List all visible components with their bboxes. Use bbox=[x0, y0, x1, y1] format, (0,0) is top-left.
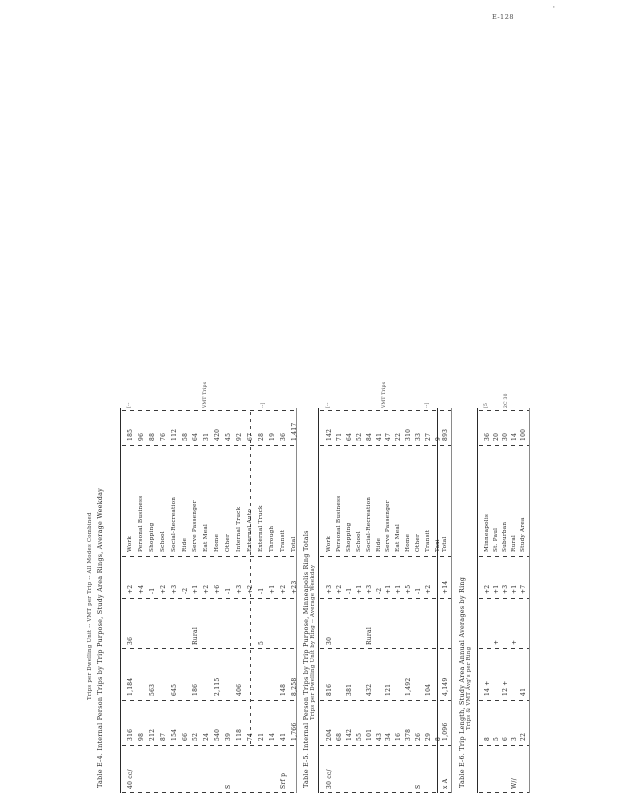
column-separator-rule bbox=[122, 410, 296, 411]
cell-value-e: 39 bbox=[226, 733, 232, 741]
cell-value-b: +3 bbox=[503, 585, 509, 594]
cell-value-a: 41 bbox=[377, 433, 383, 441]
cell-value-e: 14 bbox=[270, 733, 276, 741]
cell-value-a: 64 bbox=[193, 433, 199, 441]
column-separator-rule bbox=[122, 556, 296, 557]
cell-value-b: +2 bbox=[426, 585, 432, 594]
cell-value-a: 20 bbox=[494, 433, 500, 441]
cell-value-d: 8,258 bbox=[292, 678, 298, 696]
column-separator-rule bbox=[122, 792, 296, 793]
row-label: Serve Passenger bbox=[386, 500, 392, 552]
row-label: External Auto bbox=[248, 509, 254, 552]
cell-value-d: 12 + bbox=[503, 680, 509, 696]
column-separator-rule bbox=[479, 598, 529, 599]
cell-value-b: -2 bbox=[183, 588, 189, 594]
table-left-rule bbox=[477, 408, 478, 793]
cell-value-b: +2 bbox=[128, 585, 134, 594]
cell-value-a: 88 bbox=[150, 433, 156, 441]
column-separator-rule bbox=[479, 648, 529, 649]
table-right-rule bbox=[451, 408, 452, 793]
cell-value-b: -1 bbox=[416, 588, 422, 594]
cell-value-d: 563 bbox=[150, 684, 156, 696]
cell-value-a: 27 bbox=[426, 433, 432, 441]
cell-value-e: 52 bbox=[193, 733, 199, 741]
cell-value-b: +1 bbox=[386, 585, 392, 594]
column-header-mark: --] bbox=[426, 402, 431, 408]
column-header-mark: [-- bbox=[128, 402, 133, 408]
cell-value-e: 43 bbox=[377, 733, 383, 741]
cell-value-a: 310 bbox=[406, 429, 412, 441]
cell-value-b: +3 bbox=[172, 585, 178, 594]
column-header-mark: --] bbox=[262, 402, 267, 408]
row-label: School bbox=[357, 531, 363, 552]
cell-value-e: 24 bbox=[204, 733, 210, 741]
cell-value-d: 816 bbox=[327, 684, 333, 696]
table-subtitle: Trips & VMT Avg's per Ring bbox=[467, 647, 472, 730]
cell-value-f: S bbox=[226, 785, 232, 789]
cell-value-e: 540 bbox=[215, 729, 221, 741]
cell-value-e: 101 bbox=[367, 729, 373, 741]
table-subtitle: Trips per Dwelling Unit -- VMT per Trip … bbox=[88, 512, 93, 700]
cell-value-b: +3 bbox=[237, 585, 243, 594]
cell-value-b: -1 bbox=[150, 588, 156, 594]
cell-value-e: 142 bbox=[347, 729, 353, 741]
cell-value-e: 29 bbox=[426, 733, 432, 741]
column-separator-rule bbox=[479, 410, 529, 411]
table-total-rule bbox=[437, 408, 438, 793]
cell-value-d: 14 + bbox=[485, 680, 491, 696]
row-label: Eat Meal bbox=[396, 524, 402, 552]
cell-value-b: -1 bbox=[259, 588, 265, 594]
cell-value-c: 5 bbox=[259, 641, 265, 645]
cell-value-b: +2 bbox=[281, 585, 287, 594]
cell-value-d: 432 bbox=[367, 684, 373, 696]
row-label: Shopping bbox=[347, 523, 353, 552]
cell-value-a: 30 bbox=[503, 433, 509, 441]
cell-value-b: +14 bbox=[443, 581, 449, 594]
cell-value-e: 22 bbox=[521, 733, 527, 741]
row-label: Other bbox=[226, 534, 232, 552]
cell-value-a: 1,417 bbox=[292, 423, 298, 441]
cell-value-b: +1 bbox=[512, 585, 518, 594]
cell-value-a: 28 bbox=[259, 433, 265, 441]
cell-value-a: 22 bbox=[396, 433, 402, 441]
cell-value-d: 4,149 bbox=[443, 678, 449, 696]
cell-value-a: 84 bbox=[367, 433, 373, 441]
row-label: Work bbox=[327, 536, 333, 552]
cell-value-a: 45 bbox=[226, 433, 232, 441]
cell-value-e: 378 bbox=[406, 729, 412, 741]
row-label: Home bbox=[215, 534, 221, 552]
cell-value-b: -1 bbox=[226, 588, 232, 594]
cell-value-e: 87 bbox=[161, 733, 167, 741]
column-separator-rule bbox=[122, 700, 296, 701]
cell-value-b: +23 bbox=[292, 581, 298, 594]
cell-value-f: Srf p bbox=[281, 773, 287, 789]
cell-value-c: 30 bbox=[327, 637, 333, 645]
column-header-mark: 2C 30 bbox=[505, 393, 510, 408]
cell-value-f: x A bbox=[443, 779, 449, 789]
row-label: Home bbox=[406, 534, 412, 552]
row-label: Work bbox=[128, 536, 134, 552]
cell-value-d: 645 bbox=[172, 684, 178, 696]
cell-value-f: S bbox=[416, 785, 422, 789]
cell-value-c: + bbox=[512, 640, 518, 645]
cell-value-d: 1,184 bbox=[128, 678, 134, 696]
row-label: Minneapolis bbox=[485, 514, 491, 552]
cell-value-a: 14 bbox=[512, 433, 518, 441]
cell-value-a: 58 bbox=[183, 433, 189, 441]
page-number-label: E-128 bbox=[492, 13, 514, 21]
column-header-mark: [5 bbox=[485, 403, 490, 408]
cell-value-e: 5 bbox=[494, 737, 500, 741]
cell-value-b: +3 bbox=[367, 585, 373, 594]
table-right-rule bbox=[529, 408, 530, 793]
column-separator-rule bbox=[320, 745, 451, 746]
row-label: Personal Business bbox=[337, 496, 343, 552]
cell-value-a: 36 bbox=[485, 433, 491, 441]
cell-value-d: 1,492 bbox=[406, 678, 412, 696]
cell-value-e: 316 bbox=[128, 729, 134, 741]
cell-value-a: 52 bbox=[357, 433, 363, 441]
table-title: Table E-4. Internal Person Trips by Trip… bbox=[97, 488, 103, 788]
column-separator-rule bbox=[320, 556, 451, 557]
cell-value-a: 76 bbox=[161, 433, 167, 441]
row-label: Total bbox=[292, 536, 298, 552]
cell-value-f: W// bbox=[512, 778, 518, 789]
row-group-separator bbox=[250, 412, 251, 745]
cell-value-b: +6 bbox=[215, 585, 221, 594]
cell-value-e: 8 bbox=[485, 737, 491, 741]
cell-value-e: 66 bbox=[183, 733, 189, 741]
row-label: Eat Meal bbox=[204, 524, 210, 552]
cell-value-c: Rural bbox=[367, 627, 373, 645]
cell-value-e: 6 bbox=[503, 737, 509, 741]
cell-value-c: + bbox=[494, 640, 500, 645]
column-separator-rule bbox=[320, 598, 451, 599]
cell-value-e: 8 bbox=[436, 737, 442, 741]
cell-value-e: 3 bbox=[512, 737, 518, 741]
cell-value-e: 26 bbox=[416, 733, 422, 741]
table-left-rule bbox=[318, 408, 319, 793]
scanned-document-page: E-128 ' Table E-4. Internal Person Trips… bbox=[0, 0, 618, 800]
column-separator-rule bbox=[479, 792, 529, 793]
cell-value-a: 420 bbox=[215, 429, 221, 441]
row-label: Ride bbox=[183, 538, 189, 552]
cell-value-a: 96 bbox=[139, 433, 145, 441]
cell-value-b: +2 bbox=[161, 585, 167, 594]
cell-value-e: 1,766 bbox=[292, 723, 298, 741]
cell-value-b: +1 bbox=[494, 585, 500, 594]
cell-value-d: 406 bbox=[237, 684, 243, 696]
row-label: Through bbox=[270, 526, 276, 552]
row-label: Transit bbox=[281, 530, 287, 552]
column-separator-rule bbox=[479, 700, 529, 701]
row-label: Ride bbox=[377, 538, 383, 552]
row-label: Rural bbox=[512, 535, 518, 552]
cell-value-a: 47 bbox=[386, 433, 392, 441]
cell-value-b: +7 bbox=[521, 585, 527, 594]
column-separator-rule bbox=[122, 445, 296, 446]
cell-value-b: +1 bbox=[396, 585, 402, 594]
cell-value-a: 33 bbox=[416, 433, 422, 441]
cell-value-e: 204 bbox=[327, 729, 333, 741]
row-label: Personal Business bbox=[139, 496, 145, 552]
cell-value-b: +2 bbox=[204, 585, 210, 594]
cell-value-d: 121 bbox=[386, 684, 392, 696]
column-separator-rule bbox=[479, 745, 529, 746]
cell-value-b: +1 bbox=[270, 585, 276, 594]
cell-value-d: 186 bbox=[193, 684, 199, 696]
column-separator-rule bbox=[122, 745, 296, 746]
column-separator-rule bbox=[320, 410, 451, 411]
cell-value-e: 21 bbox=[259, 733, 265, 741]
cell-value-e: 16 bbox=[396, 733, 402, 741]
column-separator-rule bbox=[479, 445, 529, 446]
table-left-rule bbox=[120, 408, 121, 793]
column-header-mark: [-- bbox=[327, 402, 332, 408]
cell-value-b: +4 bbox=[139, 585, 145, 594]
cell-value-b: +5 bbox=[406, 585, 412, 594]
column-header-mark: VMT Trips bbox=[383, 382, 388, 408]
cell-value-e: 118 bbox=[237, 729, 243, 741]
row-label: Shopping bbox=[150, 523, 156, 552]
cell-value-b: +2 bbox=[248, 585, 254, 594]
cell-value-a: 92 bbox=[237, 433, 243, 441]
cell-value-e: 55 bbox=[357, 733, 363, 741]
cell-value-b: -1 bbox=[347, 588, 353, 594]
cell-value-a: 31 bbox=[204, 433, 210, 441]
row-label: External Truck bbox=[259, 505, 265, 552]
cell-value-e: 74 bbox=[248, 733, 254, 741]
column-header-mark: VMT Trips bbox=[204, 382, 209, 408]
cell-value-c: Rural bbox=[193, 627, 199, 645]
cell-value-a: 19 bbox=[270, 433, 276, 441]
column-separator-rule bbox=[122, 648, 296, 649]
cell-value-d: 104 bbox=[426, 684, 432, 696]
cell-value-a: 185 bbox=[128, 429, 134, 441]
cell-value-f: 30 cc/ bbox=[327, 769, 333, 789]
cell-value-f: 40 cc/ bbox=[128, 769, 134, 789]
column-separator-rule bbox=[479, 556, 529, 557]
cell-value-a: 893 bbox=[443, 429, 449, 441]
cell-value-e: 154 bbox=[172, 729, 178, 741]
cell-value-d: 41 bbox=[521, 688, 527, 696]
cell-value-e: 41 bbox=[281, 733, 287, 741]
cell-value-b: +2 bbox=[337, 585, 343, 594]
cell-value-a: 71 bbox=[337, 433, 343, 441]
cell-value-e: 1,096 bbox=[443, 723, 449, 741]
cell-value-b: +2 bbox=[485, 585, 491, 594]
cell-value-b: +3 bbox=[327, 585, 333, 594]
cell-value-d: 148 bbox=[281, 684, 287, 696]
column-separator-rule bbox=[122, 598, 296, 599]
row-label: Internal Truck bbox=[237, 507, 243, 552]
stray-mark: ' bbox=[553, 5, 555, 13]
table-title: Table E-5. Internal Person Trips by Trip… bbox=[303, 530, 309, 788]
column-separator-rule bbox=[320, 445, 451, 446]
table-title: Table E-6. Trip Length, Study Area Annua… bbox=[459, 577, 465, 788]
row-label: Total bbox=[443, 536, 449, 552]
row-label: Other bbox=[416, 534, 422, 552]
column-separator-rule bbox=[320, 700, 451, 701]
cell-value-a: 64 bbox=[347, 433, 353, 441]
row-label: Social-Recreation bbox=[172, 497, 178, 552]
row-label: Suburban bbox=[503, 522, 509, 552]
cell-value-b: +1 bbox=[357, 585, 363, 594]
column-separator-rule bbox=[320, 792, 451, 793]
cell-value-c: 36 bbox=[128, 637, 134, 645]
row-label: Transit bbox=[426, 530, 432, 552]
cell-value-e: 34 bbox=[386, 733, 392, 741]
row-label: Taxi bbox=[436, 539, 442, 552]
column-separator-rule bbox=[320, 648, 451, 649]
cell-value-a: 100 bbox=[521, 429, 527, 441]
cell-value-d: 2,115 bbox=[215, 678, 221, 696]
cell-value-e: 98 bbox=[139, 733, 145, 741]
row-label: Study Area bbox=[521, 517, 527, 552]
row-label: St. Paul bbox=[494, 528, 500, 552]
table-subtitle: Trips per Dwelling Unit by Ring -- Avera… bbox=[311, 565, 316, 720]
cell-value-a: 36 bbox=[281, 433, 287, 441]
cell-value-a: 9 bbox=[436, 437, 442, 441]
row-label: Serve Passenger bbox=[193, 500, 199, 552]
cell-value-b: -2 bbox=[377, 588, 383, 594]
cell-value-e: 212 bbox=[150, 729, 156, 741]
cell-value-b: +1 bbox=[193, 585, 199, 594]
cell-value-e: 68 bbox=[337, 733, 343, 741]
cell-value-d: 381 bbox=[347, 684, 353, 696]
row-label: Social-Recreation bbox=[367, 497, 373, 552]
cell-value-a: 142 bbox=[327, 429, 333, 441]
cell-value-a: 112 bbox=[172, 429, 178, 441]
row-label: School bbox=[161, 531, 167, 552]
cell-value-a: 67 bbox=[248, 433, 254, 441]
